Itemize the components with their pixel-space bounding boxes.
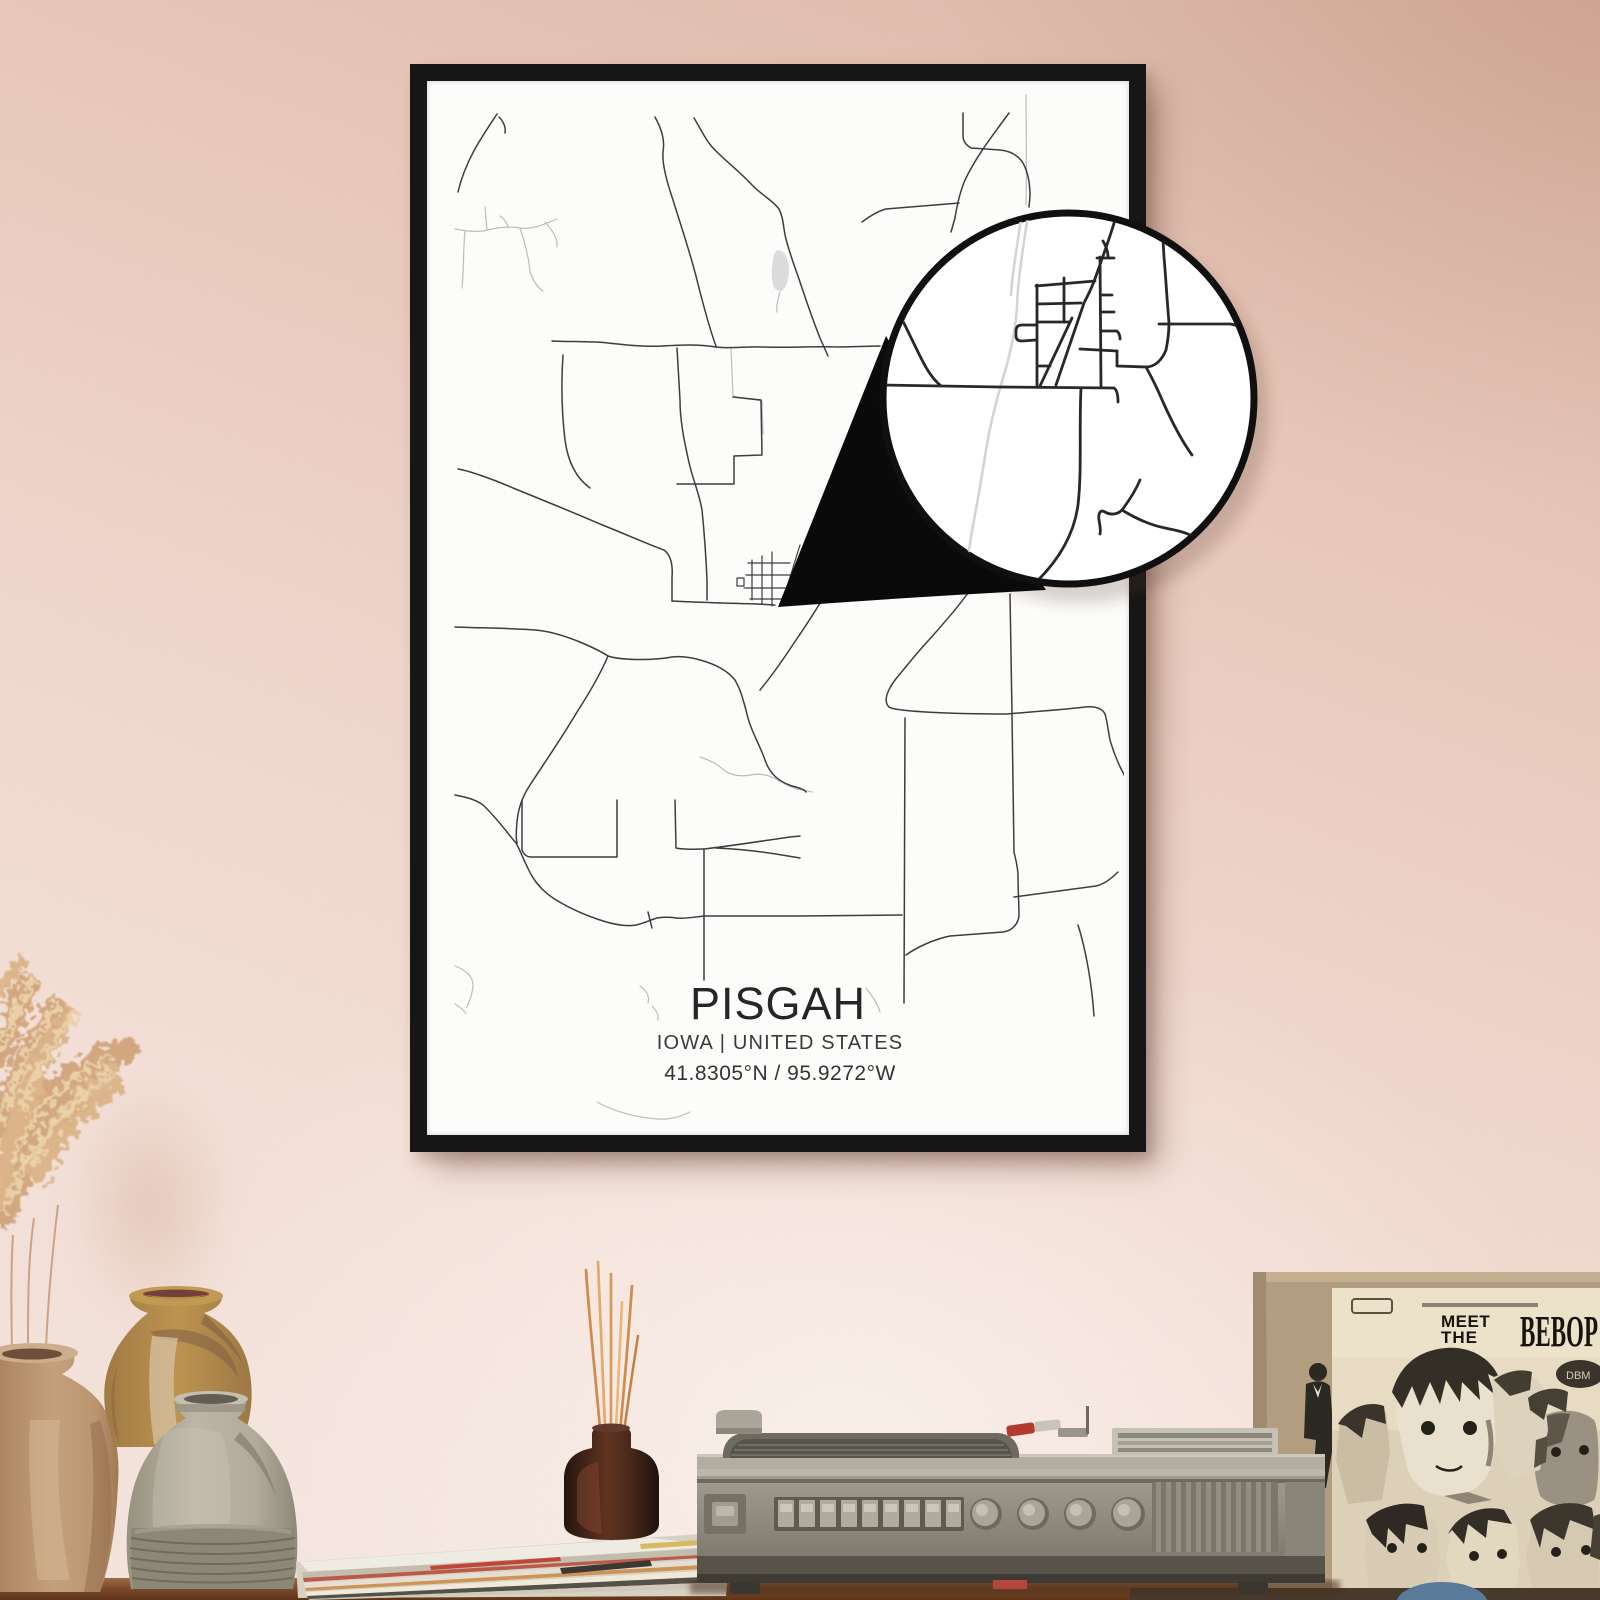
svg-text:DBM: DBM bbox=[1566, 1370, 1590, 1382]
svg-text:THE: THE bbox=[1441, 1328, 1478, 1347]
svg-text:BEBOP: BEBOP bbox=[1520, 1307, 1598, 1356]
